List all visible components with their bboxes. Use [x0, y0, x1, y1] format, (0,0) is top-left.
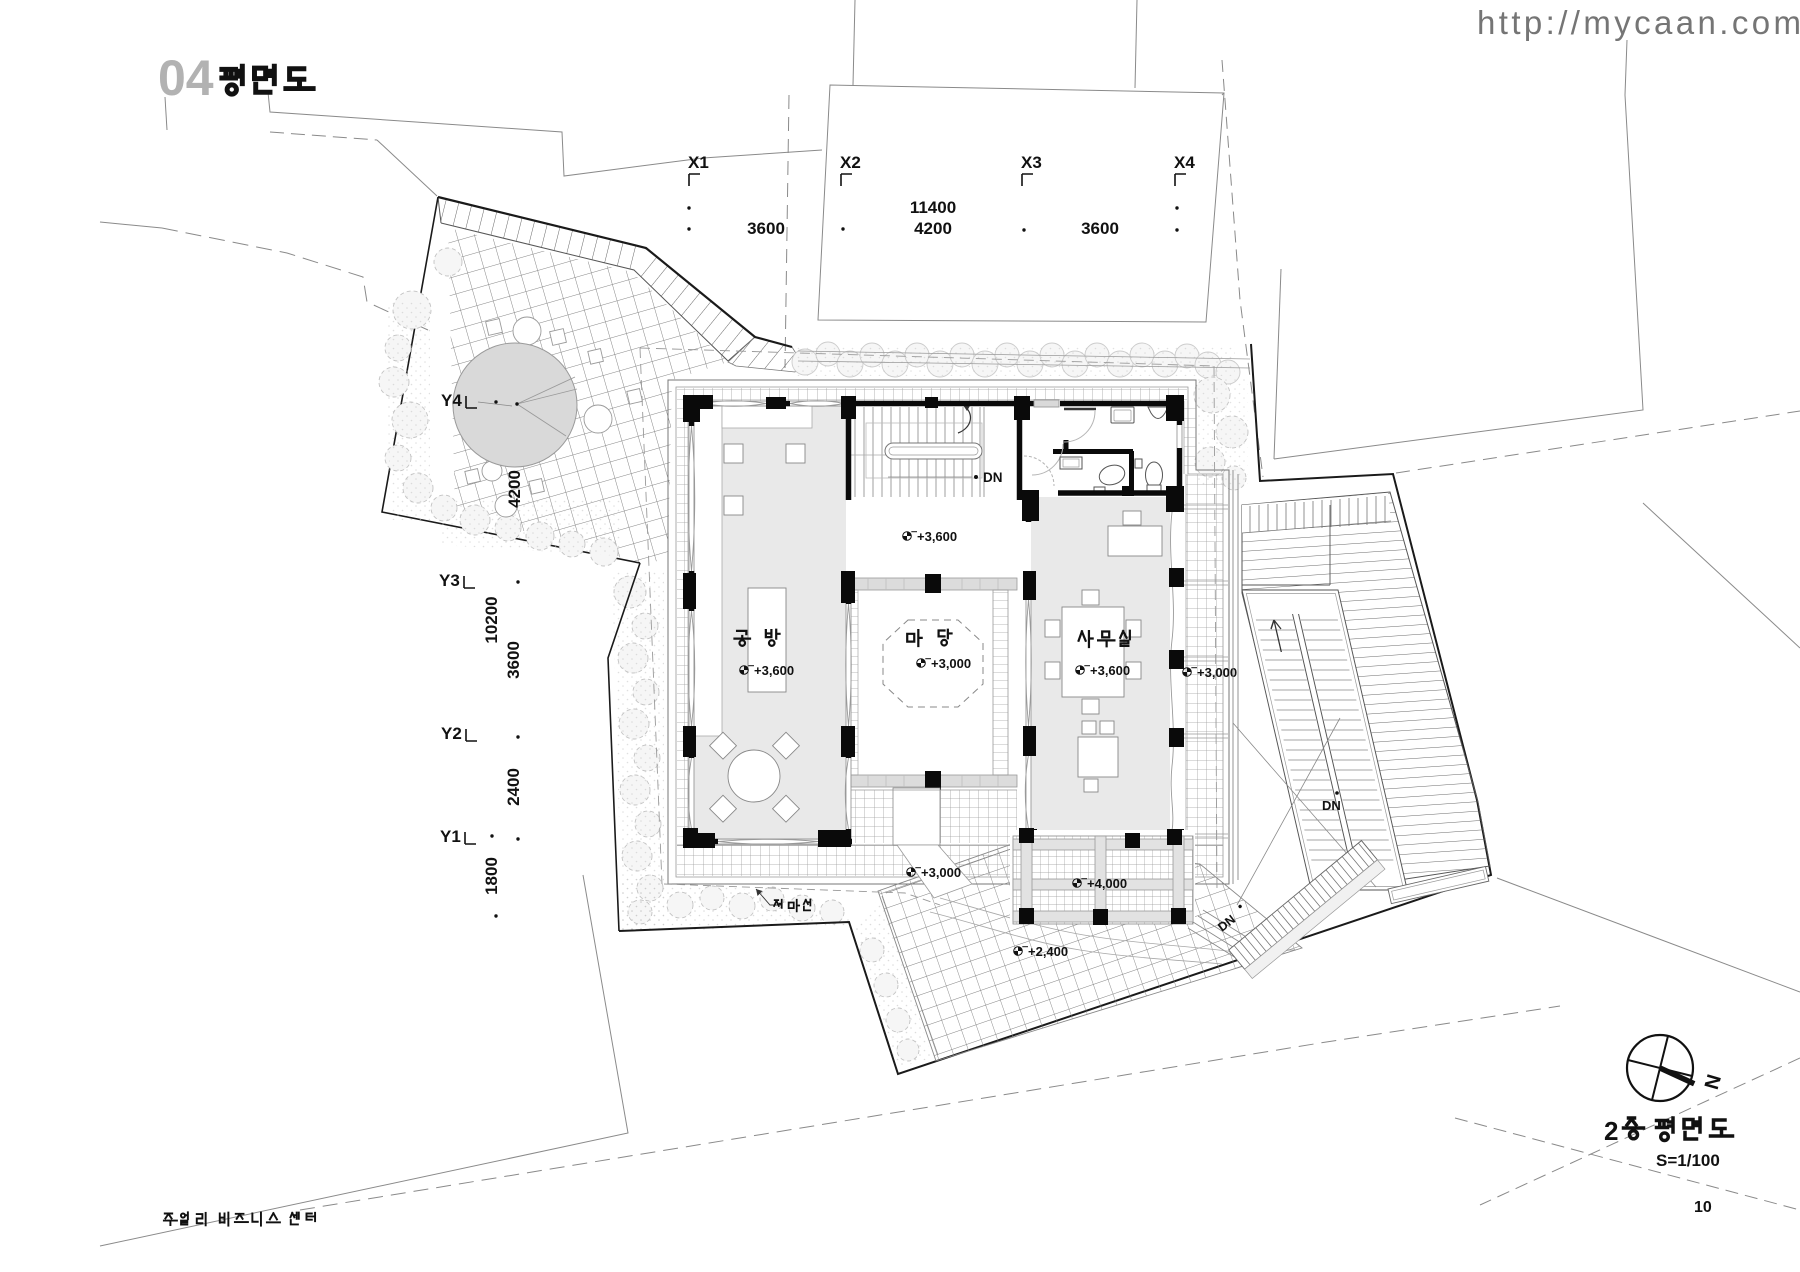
svg-text:Y2: Y2 — [441, 724, 462, 743]
svg-text:X4: X4 — [1174, 153, 1195, 172]
svg-text:2: 2 — [1604, 1116, 1618, 1146]
svg-text:+3,000: +3,000 — [1197, 665, 1237, 680]
svg-text:+2,400: +2,400 — [1028, 944, 1068, 959]
svg-text:http://mycaan.com: http://mycaan.com — [1477, 4, 1800, 41]
svg-text:3600: 3600 — [1081, 219, 1119, 238]
svg-text:+4,000: +4,000 — [1087, 876, 1127, 891]
svg-text:Y4: Y4 — [441, 391, 462, 410]
svg-text:DN: DN — [1322, 798, 1341, 813]
svg-text:+3,000: +3,000 — [921, 865, 961, 880]
svg-text:1800: 1800 — [482, 857, 501, 895]
svg-text:04: 04 — [158, 50, 214, 106]
svg-text:X2: X2 — [840, 153, 861, 172]
svg-text:3600: 3600 — [747, 219, 785, 238]
svg-text:S=1/100: S=1/100 — [1656, 1151, 1720, 1170]
svg-text:X3: X3 — [1021, 153, 1042, 172]
svg-text:3600: 3600 — [504, 641, 523, 679]
svg-text:Y1: Y1 — [440, 827, 461, 846]
svg-text:+3,600: +3,600 — [1090, 663, 1130, 678]
svg-text:Y3: Y3 — [439, 571, 460, 590]
svg-text:2400: 2400 — [504, 768, 523, 806]
svg-text:DN: DN — [983, 470, 1003, 485]
svg-text:+3,000: +3,000 — [931, 656, 971, 671]
svg-text:4200: 4200 — [914, 219, 952, 238]
svg-text:+3,600: +3,600 — [917, 529, 957, 544]
svg-text:+3,600: +3,600 — [754, 663, 794, 678]
svg-text:4200: 4200 — [505, 470, 524, 508]
svg-text:11400: 11400 — [910, 198, 956, 217]
svg-text:10200: 10200 — [482, 596, 501, 643]
svg-text:10: 10 — [1694, 1199, 1712, 1216]
svg-text:X1: X1 — [688, 153, 709, 172]
